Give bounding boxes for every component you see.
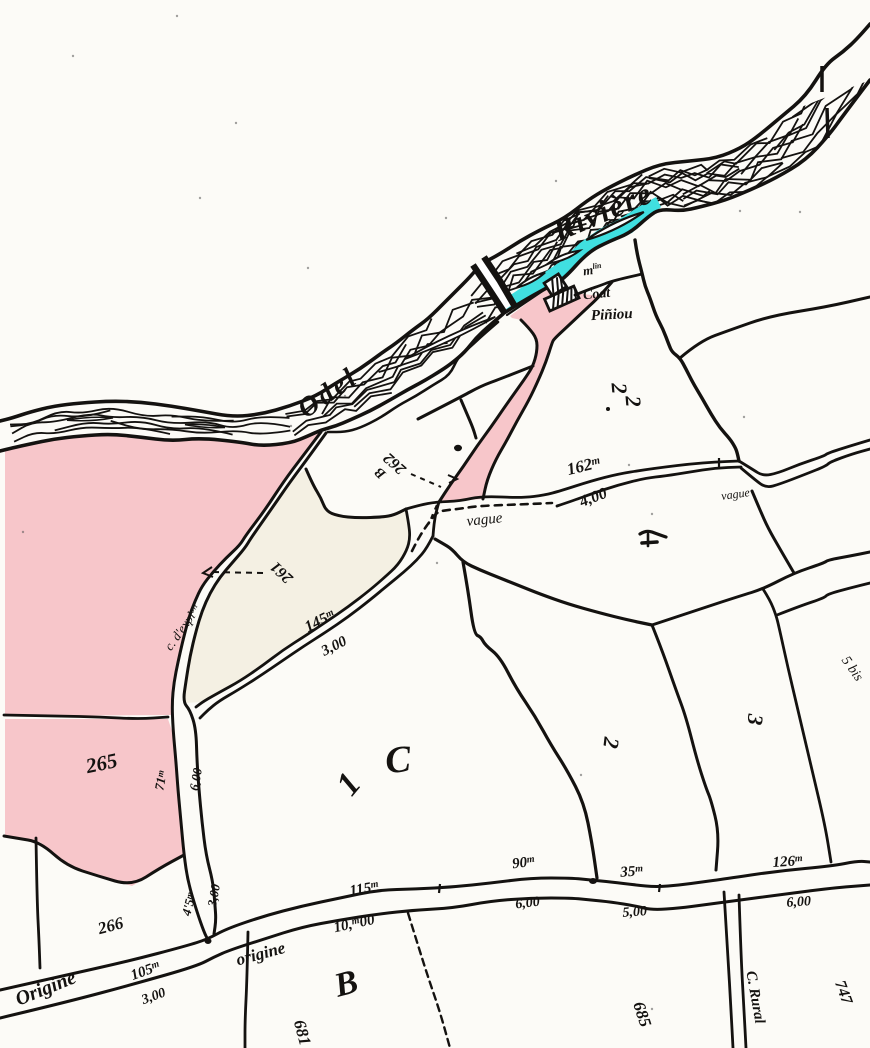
svg-text:2: 2 [620, 394, 646, 408]
svg-text:6,00: 6,00 [786, 894, 811, 911]
svg-text:6,00: 6,00 [515, 895, 541, 913]
svg-text:Piñiou: Piñiou [591, 306, 633, 324]
svg-text:2: 2 [606, 381, 632, 395]
svg-text:3: 3 [743, 712, 769, 726]
svg-text:Coat: Coat [582, 286, 612, 304]
svg-text:C: C [383, 738, 413, 782]
svg-text:5,00: 5,00 [622, 904, 647, 921]
